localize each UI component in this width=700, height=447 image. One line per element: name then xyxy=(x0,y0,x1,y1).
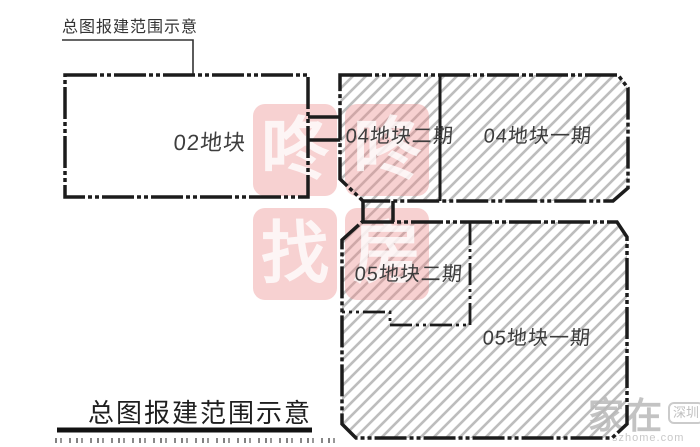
parcel-label-02: 02地块 xyxy=(173,125,248,157)
szhome-badge: 深圳 xyxy=(668,402,700,424)
parcel-label-05-phase1: 05地块一期 xyxy=(482,322,592,351)
hatch-fill-layer xyxy=(0,0,700,447)
watermark-tile: 咚 xyxy=(345,104,429,196)
watermark-tile: 找 xyxy=(253,208,337,300)
neck-04-05 xyxy=(363,201,393,222)
watermark-char: 找 xyxy=(261,220,329,288)
watermark-char: 咚 xyxy=(261,116,329,184)
diagram-title: 总图报建范围示意 xyxy=(88,393,312,430)
parcel-label-04-phase1: 04地块一期 xyxy=(483,120,593,149)
corridor-02-04 xyxy=(308,117,340,140)
clipped-caption-fragment xyxy=(55,438,337,443)
szhome-large-text: 家在 xyxy=(588,396,664,436)
neck-hatch xyxy=(363,201,393,222)
site-plan-diagram: 咚 咚 找 房 家在深圳 szhome.com 总图报建范围示意 02地块 04… xyxy=(0,0,700,447)
parcel-label-05-phase2: 05地块二期 xyxy=(354,258,464,287)
callout-label: 总图报建范围示意 xyxy=(62,13,198,37)
parcel-label-04-phase2: 04地块二期 xyxy=(345,120,455,149)
watermark-tile: 咚 xyxy=(253,104,337,196)
szhome-url-text: szhome.com xyxy=(612,432,700,444)
watermark-szhome: 家在深圳 szhome.com xyxy=(588,396,700,444)
callout-leader-line xyxy=(62,40,193,74)
boundary-line-layer xyxy=(0,0,700,447)
